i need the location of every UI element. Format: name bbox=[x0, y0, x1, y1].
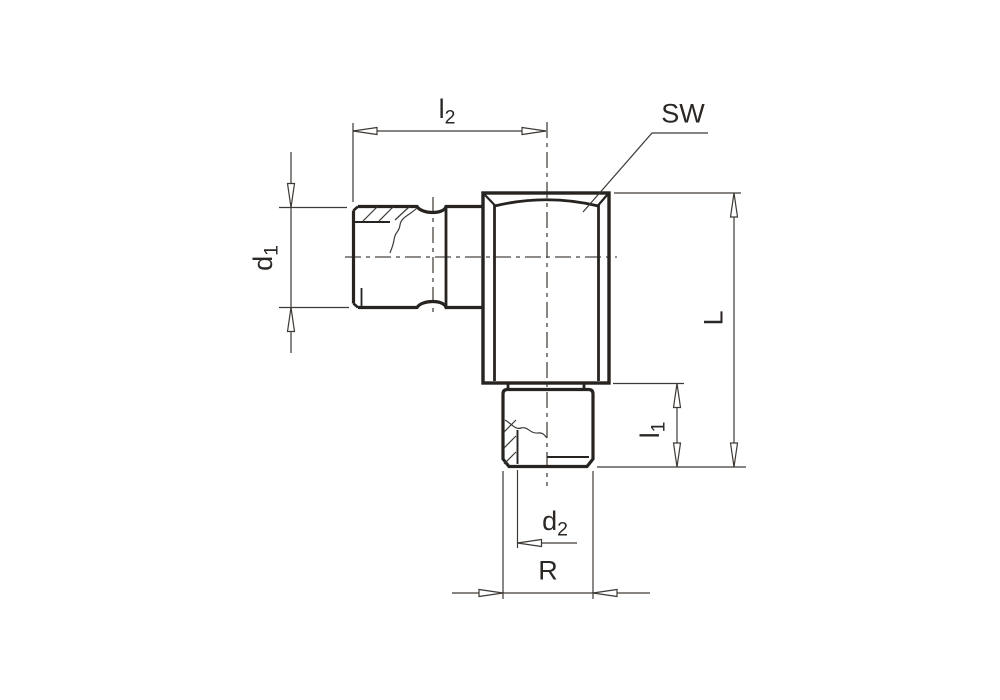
l1-arrow-bottom bbox=[674, 443, 681, 467]
R-arrow-right bbox=[593, 590, 617, 597]
dim-label-d1: d1 bbox=[250, 245, 282, 271]
dim-label-d2: d2 bbox=[542, 508, 568, 540]
bottom-stud-break-line bbox=[505, 420, 547, 438]
dim-label-l2: l2 bbox=[439, 96, 456, 128]
dim-label-sw: SW bbox=[661, 101, 705, 128]
l1-arrow-top bbox=[674, 384, 681, 408]
fitting-drawing bbox=[0, 0, 1000, 700]
L-arrow-top bbox=[731, 193, 738, 217]
left-stud-bottom-edge bbox=[358, 302, 483, 308]
bottom-stud bbox=[503, 383, 593, 467]
dimension-l2 bbox=[353, 123, 546, 202]
body-outline bbox=[483, 193, 609, 383]
dim-label-R: R bbox=[538, 558, 558, 585]
d2-arrow bbox=[518, 540, 542, 547]
body-chamfer-right bbox=[598, 195, 608, 206]
dimension-l1 bbox=[597, 384, 746, 468]
left-stud-chamfer-bottom bbox=[354, 304, 359, 308]
dimension-d1 bbox=[279, 152, 349, 353]
d1-arrow-bottom bbox=[288, 308, 295, 332]
dim-label-L: L bbox=[701, 310, 728, 325]
body-rect bbox=[483, 193, 609, 383]
l2-arrow-right bbox=[522, 128, 546, 135]
L-arrow-bottom bbox=[731, 443, 738, 467]
left-stud-thread-hatch bbox=[363, 207, 409, 221]
body-chamfer-left bbox=[485, 195, 496, 206]
dim-label-l1: l1 bbox=[637, 422, 669, 439]
center-lines bbox=[345, 122, 617, 486]
d1-arrow-top bbox=[288, 184, 295, 208]
R-arrow-left bbox=[479, 590, 503, 597]
technical-drawing-canvas: l2 SW d1 L l1 d2 R bbox=[0, 0, 1000, 700]
l2-arrow-left bbox=[353, 128, 377, 135]
left-stud-break-line bbox=[390, 208, 417, 253]
left-stud-chamfer-top bbox=[354, 207, 359, 211]
